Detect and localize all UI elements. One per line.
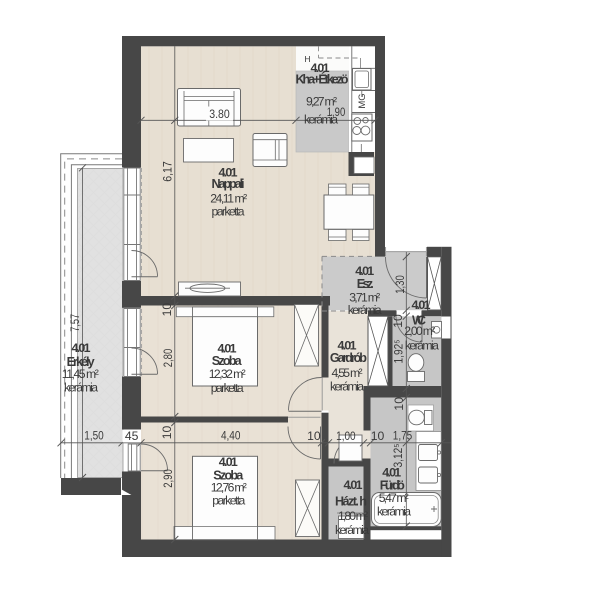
svg-text:Gardrób: Gardrób: [330, 351, 367, 365]
svg-text:kerámia: kerámia: [348, 303, 382, 317]
svg-text:9,27 m²: 9,27 m²: [306, 95, 337, 109]
svg-text:parketta: parketta: [212, 493, 245, 507]
svg-text:Házt. h: Házt. h: [335, 494, 367, 508]
svg-text:H: H: [304, 54, 310, 64]
svg-text:kerámia: kerámia: [330, 379, 364, 393]
svg-text:1,92⁵: 1,92⁵: [392, 340, 406, 364]
svg-text:kerámia: kerámia: [405, 338, 439, 352]
svg-text:10: 10: [371, 429, 385, 443]
svg-text:4,40: 4,40: [221, 429, 241, 443]
svg-text:4.01: 4.01: [412, 298, 431, 312]
svg-text:5,47 m²: 5,47 m²: [379, 491, 409, 505]
svg-text:2,00 m²: 2,00 m²: [404, 324, 435, 338]
svg-text:kerámia: kerámia: [64, 381, 98, 395]
svg-text:MG: MG: [357, 93, 368, 108]
svg-text:10: 10: [160, 303, 174, 317]
svg-text:kerámia: kerámia: [377, 505, 411, 519]
svg-text:1,80 m²: 1,80 m²: [338, 509, 368, 523]
svg-text:parketta: parketta: [212, 205, 245, 219]
svg-text:Nappali: Nappali: [212, 177, 245, 191]
svg-text:1,00: 1,00: [336, 429, 356, 443]
svg-text:10: 10: [392, 397, 406, 411]
svg-text:3.80: 3.80: [209, 107, 230, 121]
svg-text:kerámia: kerámia: [304, 113, 338, 127]
svg-text:Kha+Étkezö: Kha+Étkezö: [296, 72, 349, 87]
svg-text:10: 10: [160, 426, 174, 440]
svg-text:Szoba: Szoba: [212, 354, 243, 368]
svg-text:45: 45: [125, 429, 139, 443]
svg-text:parketta: parketta: [211, 381, 244, 395]
svg-text:4,55 m²: 4,55 m²: [332, 366, 363, 380]
svg-text:1,30: 1,30: [393, 275, 407, 294]
svg-text:4.01: 4.01: [344, 478, 363, 492]
svg-text:1,75: 1,75: [393, 429, 413, 443]
svg-text:2,80: 2,80: [161, 349, 175, 368]
svg-text:4.01: 4.01: [355, 264, 374, 278]
svg-text:7,57: 7,57: [68, 314, 82, 332]
svg-text:10: 10: [391, 314, 405, 328]
svg-text:6,17: 6,17: [161, 161, 175, 182]
svg-text:12,32 m²: 12,32 m²: [209, 367, 246, 381]
svg-text:12,76 m²: 12,76 m²: [211, 480, 247, 494]
svg-text:1,50: 1,50: [84, 429, 104, 443]
svg-text:10: 10: [307, 429, 321, 443]
svg-text:4.01: 4.01: [382, 465, 401, 479]
svg-text:2,90: 2,90: [161, 469, 175, 488]
svg-text:Esz.: Esz.: [357, 277, 374, 291]
svg-text:3,12⁵: 3,12⁵: [391, 444, 405, 468]
svg-text:24,11 m²: 24,11 m²: [210, 191, 247, 205]
svg-text:11,45 m²: 11,45 m²: [62, 367, 99, 381]
svg-text:4.01: 4.01: [219, 455, 238, 469]
svg-text:4.01: 4.01: [72, 341, 91, 355]
svg-text:kerámia: kerámia: [335, 523, 369, 537]
